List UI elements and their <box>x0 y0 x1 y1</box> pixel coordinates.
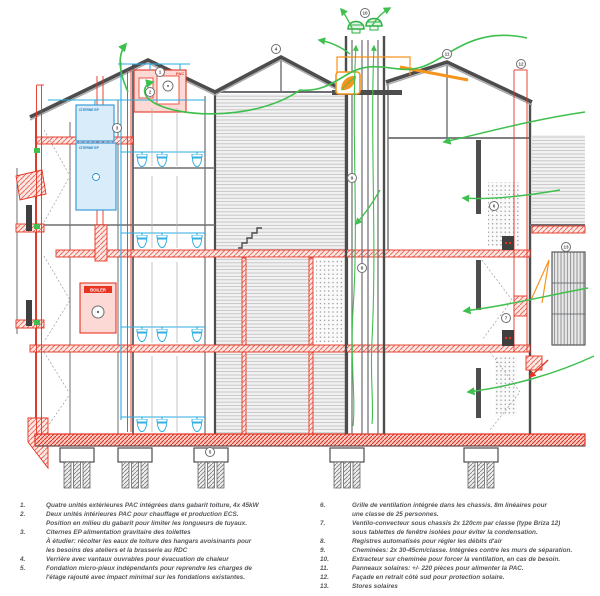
legend-row: À étudier: récolter les eaux de toiture … <box>20 538 305 547</box>
building-section-drawing: PAC BOILER CITERNE EP CITERNE EP <box>0 0 600 500</box>
legend-item-text: une classe de 25 personnes. <box>352 511 596 520</box>
boiler-unit: BOILER <box>80 283 116 333</box>
legend-item-number: 12. <box>320 574 352 583</box>
airflow-arrows <box>120 8 594 426</box>
legend-item-text: Citernes EP alimentation gravitaire des … <box>46 529 305 538</box>
legend-item-number: 4. <box>20 556 46 565</box>
legend-item-text: Panneaux solaires: +/- 220 pièces pour a… <box>352 565 596 574</box>
pac-label: PAC <box>176 71 184 76</box>
legend-marker-number: 2 <box>149 90 152 95</box>
legend-item-text: Stores solaires <box>352 583 596 592</box>
legend-marker-number: 11 <box>445 52 450 57</box>
legend-row: 6.Grille de ventilation intégrée dans le… <box>320 502 596 511</box>
legend-item-text: Extracteur sur cheminée pour forcer la v… <box>352 556 596 565</box>
legend-marker-number: 13 <box>563 245 569 250</box>
legend-row: les besoins des ateliers et la brasserie… <box>20 547 305 556</box>
fan-coil-unit <box>502 236 514 250</box>
legend-item-text: Ventilo-convecteur sous chassis 2x 120cm… <box>352 520 596 529</box>
legend-row: 3.Citernes EP alimentation gravitaire de… <box>20 529 305 538</box>
chimney-cowl-icon <box>348 22 364 34</box>
legend-marker-number: 8 <box>361 266 364 271</box>
boiler-label: BOILER <box>90 288 106 293</box>
fan-coil-unit <box>502 330 514 346</box>
citerne-bottom-label: CITERNE EP <box>79 146 100 150</box>
legend-column-right: 6.Grille de ventilation intégrée dans le… <box>320 502 596 592</box>
legend-marker-number: 4 <box>275 47 278 52</box>
foundations <box>35 446 585 488</box>
pile-cap <box>464 448 498 488</box>
legend-row: Position en milieu du gabarit pour limit… <box>20 520 305 529</box>
legend-item-text: Registres automatisés pour régler les dé… <box>352 538 596 547</box>
legend-row: 1.Quatre unités extérieures PAC intégrée… <box>20 502 305 511</box>
legend-row: l'étage rajouté avec impact minimal sur … <box>20 574 305 583</box>
legend-item-text: Verrière avec vantaux ouvrables pour éva… <box>46 556 305 565</box>
legend-item-number: 1. <box>20 502 46 511</box>
legend-item-text: sous tablettes de fenêtre isolées pour é… <box>352 529 596 538</box>
pile-cap <box>60 448 94 488</box>
legend-marker-number: 7 <box>505 316 508 321</box>
legend-marker-number: 9 <box>351 176 354 181</box>
toilets <box>137 154 202 432</box>
legend-item-number: 8. <box>320 538 352 547</box>
legend-row: 8.Registres automatisés pour régler les … <box>320 538 596 547</box>
legend-row: une classe de 25 personnes. <box>320 511 596 520</box>
legend-row: 11.Panneaux solaires: +/- 220 pièces pou… <box>320 565 596 574</box>
water-pipes <box>48 62 205 420</box>
legend-marker-number: 3 <box>116 126 119 131</box>
legend-item-text: Deux unités intérieures PAC pour chauffa… <box>46 511 305 520</box>
pile-cap <box>118 448 152 488</box>
legend-item-text: Fondation micro-pieux indépendants pour … <box>46 565 305 574</box>
building-section-page: PAC BOILER CITERNE EP CITERNE EP <box>0 0 600 596</box>
legend-row: 10.Extracteur sur cheminée pour forcer l… <box>320 556 596 565</box>
legend-row: 12.Façade en retrait côté sud pour prote… <box>320 574 596 583</box>
legend-item-text: Façade en retrait côté sud pour protecti… <box>352 574 596 583</box>
legend-item-text: À étudier: récolter les eaux de toiture … <box>46 538 305 547</box>
legend-item-text: Grille de ventilation intégrée dans les … <box>352 502 596 511</box>
legend-row: sous tablettes de fenêtre isolées pour é… <box>320 529 596 538</box>
legend-item-number: 10. <box>320 556 352 565</box>
legend-item-number: 7. <box>320 520 352 529</box>
legend-item-number: 3. <box>20 529 46 538</box>
legend-item-text: Position en milieu du gabarit pour limit… <box>46 520 305 529</box>
legend-row: 13.Stores solaires <box>320 583 596 592</box>
legend-item-text: les besoins des ateliers et la brasserie… <box>46 547 305 556</box>
legend-marker-number: 1 <box>159 70 162 75</box>
pile-cap <box>330 448 364 488</box>
citerne-top-label: CITERNE EP <box>79 108 100 112</box>
legend-marker-number: 10 <box>362 11 368 16</box>
legend-marker-number: 6 <box>493 204 496 209</box>
rainwater-tanks: CITERNE EP CITERNE EP <box>76 105 116 210</box>
legend-item-text: l'étage rajouté avec impact minimal sur … <box>46 574 305 583</box>
legend-item-number: 6. <box>320 502 352 511</box>
legend-row: 7.Ventilo-convecteur sous chassis 2x 120… <box>320 520 596 529</box>
legend-marker-number: 5 <box>209 450 212 455</box>
legend-item-number: 11. <box>320 565 352 574</box>
legend-row: 5.Fondation micro-pieux indépendants pou… <box>20 565 305 574</box>
legend-row: 2.Deux unités intérieures PAC pour chauf… <box>20 511 305 520</box>
legend-row: 4.Verrière avec vantaux ouvrables pour é… <box>20 556 305 565</box>
legend-item-number: 2. <box>20 511 46 520</box>
legend-item-text: Quatre unités extérieures PAC intégrées … <box>46 502 305 511</box>
legend-item-number: 9. <box>320 547 352 556</box>
legend-item-number: 5. <box>20 565 46 574</box>
legend-row: 9.Cheminées: 2x 30-45cm/classe. Intégrée… <box>320 547 596 556</box>
legend-item-text: Cheminées: 2x 30-45cm/classe. Intégrées … <box>352 547 596 556</box>
legend-column-left: 1.Quatre unités extérieures PAC intégrée… <box>20 502 305 583</box>
chimney-cowl-icon <box>366 19 382 31</box>
legend-item-number: 13. <box>320 583 352 592</box>
solar-shade-louvres <box>552 252 585 345</box>
legend-marker-number: 12 <box>518 62 524 67</box>
